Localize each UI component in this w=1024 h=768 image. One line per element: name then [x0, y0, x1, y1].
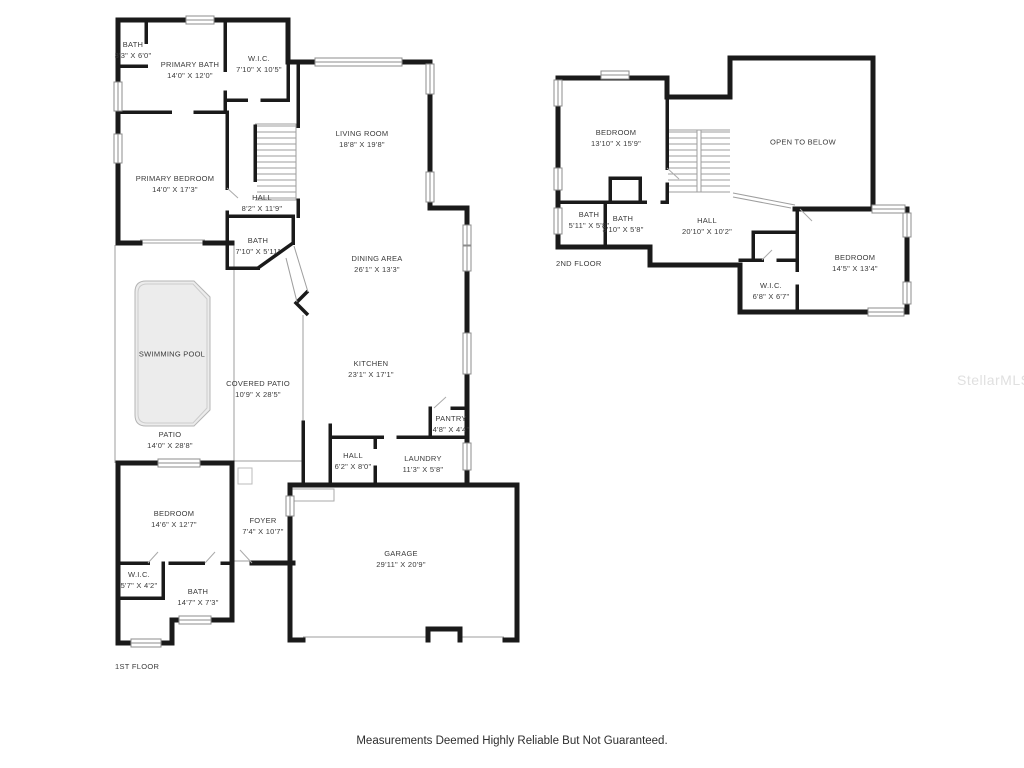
room-name: SWIMMING POOL	[139, 348, 205, 359]
room-dims: 14'0" X 17'3"	[136, 184, 215, 195]
room-dims: 6'2" X 8'0"	[335, 461, 372, 472]
room-label-patio: PATIO14'0" X 28'8"	[147, 429, 193, 452]
room-name: DINING AREA	[351, 253, 402, 264]
room-label-dining-area: DINING AREA26'1" X 13'3"	[351, 253, 402, 276]
watermark: StellarMLS	[957, 372, 1024, 388]
room-label-bath-f2b: BATH3'10" X 5'8"	[602, 213, 643, 236]
room-label-wic-f2: W.I.C.6'8" X 6'7"	[753, 280, 790, 303]
room-label-bath-small-f1: BATH3'3" X 6'0"	[115, 39, 152, 62]
room-dims: 18'8" X 19'8"	[336, 139, 389, 150]
disclaimer-text: Measurements Deemed Highly Reliable But …	[0, 735, 1024, 747]
floor2-caption: 2ND FLOOR	[556, 259, 602, 268]
floorplan-canvas: BATH3'3" X 6'0" PRIMARY BATH14'0" X 12'0…	[0, 0, 1024, 768]
room-label-foyer: FOYER7'4" X 10'7"	[242, 515, 283, 538]
room-name: GARAGE	[376, 548, 426, 559]
room-label-wic-f1: W.I.C.7'10" X 10'5"	[236, 53, 282, 76]
room-dims: 14'5" X 13'4"	[832, 263, 878, 274]
room-label-laundry: LAUNDRY11'3" X 5'8"	[403, 453, 444, 476]
room-name: PRIMARY BEDROOM	[136, 173, 215, 184]
room-dims: 8'2" X 11'9"	[242, 203, 283, 214]
room-label-bedroom-f2b: BEDROOM14'5" X 13'4"	[832, 252, 878, 275]
floor1-caption: 1ST FLOOR	[115, 662, 159, 671]
room-name: LAUNDRY	[403, 453, 444, 464]
room-name: PATIO	[147, 429, 193, 440]
room-label-open-to-below: OPEN TO BELOW	[770, 136, 836, 147]
room-label-covered-patio: COVERED PATIO10'9" X 28'5"	[226, 378, 290, 401]
room-dims: 4'8" X 4'4"	[433, 424, 470, 435]
room-dims: 14'7" X 7'3"	[177, 597, 218, 608]
floor2-thin-lines	[668, 130, 730, 192]
floor2-railing	[733, 193, 795, 208]
room-name: HALL	[682, 215, 732, 226]
room-name: PANTRY	[433, 413, 470, 424]
room-name: BEDROOM	[832, 252, 878, 263]
room-name: W.I.C.	[753, 280, 790, 291]
room-dims: 6'8" X 6'7"	[753, 291, 790, 302]
room-name: OPEN TO BELOW	[770, 136, 836, 147]
room-label-primary-bath: PRIMARY BATH14'0" X 12'0"	[161, 59, 219, 82]
room-name: HALL	[242, 192, 283, 203]
room-label-bath-f1: BATH14'7" X 7'3"	[177, 586, 218, 609]
room-dims: 14'0" X 28'8"	[147, 440, 193, 451]
room-label-bath-pool: BATH7'10" X 5'11"	[235, 235, 280, 258]
room-name: HALL	[335, 450, 372, 461]
room-label-bedroom-f2a: BEDROOM13'10" X 15'9"	[591, 127, 641, 150]
room-dims: 3'10" X 5'8"	[602, 224, 643, 235]
room-label-hall-f1: HALL8'2" X 11'9"	[242, 192, 283, 215]
room-name: BEDROOM	[151, 508, 197, 519]
room-name: LIVING ROOM	[336, 128, 389, 139]
room-dims: 7'10" X 5'11"	[235, 246, 280, 257]
room-name: BATH	[177, 586, 218, 597]
room-label-pantry: PANTRY4'8" X 4'4"	[433, 413, 470, 436]
room-name: BATH	[602, 213, 643, 224]
room-name: BATH	[115, 39, 152, 50]
room-name: BEDROOM	[591, 127, 641, 138]
room-dims: 7'10" X 10'5"	[236, 64, 282, 75]
room-dims: 3'3" X 6'0"	[115, 50, 152, 61]
floor-plan-drawing	[0, 0, 1024, 768]
room-dims: 20'10" X 10'2"	[682, 226, 732, 237]
room-name: W.I.C.	[121, 569, 158, 580]
room-label-hall-small: HALL6'2" X 8'0"	[335, 450, 372, 473]
room-name: FOYER	[242, 515, 283, 526]
room-dims: 14'6" X 12'7"	[151, 519, 197, 530]
room-label-primary-bedroom: PRIMARY BEDROOM14'0" X 17'3"	[136, 173, 215, 196]
room-dims: 11'3" X 5'8"	[403, 464, 444, 475]
floor2-windows	[554, 71, 911, 316]
room-label-swimming-pool: SWIMMING POOL	[139, 348, 205, 359]
room-dims: 7'4" X 10'7"	[242, 526, 283, 537]
room-name: PRIMARY BATH	[161, 59, 219, 70]
room-label-hall-f2: HALL20'10" X 10'2"	[682, 215, 732, 238]
room-label-living-room: LIVING ROOM18'8" X 19'8"	[336, 128, 389, 151]
room-dims: 10'9" X 28'5"	[226, 389, 290, 400]
room-dims: 29'11" X 20'9"	[376, 559, 426, 570]
room-dims: 26'1" X 13'3"	[351, 264, 402, 275]
room-dims: 13'10" X 15'9"	[591, 138, 641, 149]
room-dims: 23'1" X 17'1"	[348, 369, 394, 380]
room-dims: 5'7" X 4'2"	[121, 580, 158, 591]
room-dims: 14'0" X 12'0"	[161, 70, 219, 81]
room-name: W.I.C.	[236, 53, 282, 64]
room-label-kitchen: KITCHEN23'1" X 17'1"	[348, 358, 394, 381]
room-name: COVERED PATIO	[226, 378, 290, 389]
room-name: BATH	[235, 235, 280, 246]
room-name: KITCHEN	[348, 358, 394, 369]
room-label-wic-small: W.I.C.5'7" X 4'2"	[121, 569, 158, 592]
room-label-garage: GARAGE29'11" X 20'9"	[376, 548, 426, 571]
room-label-bedroom-f1: BEDROOM14'6" X 12'7"	[151, 508, 197, 531]
